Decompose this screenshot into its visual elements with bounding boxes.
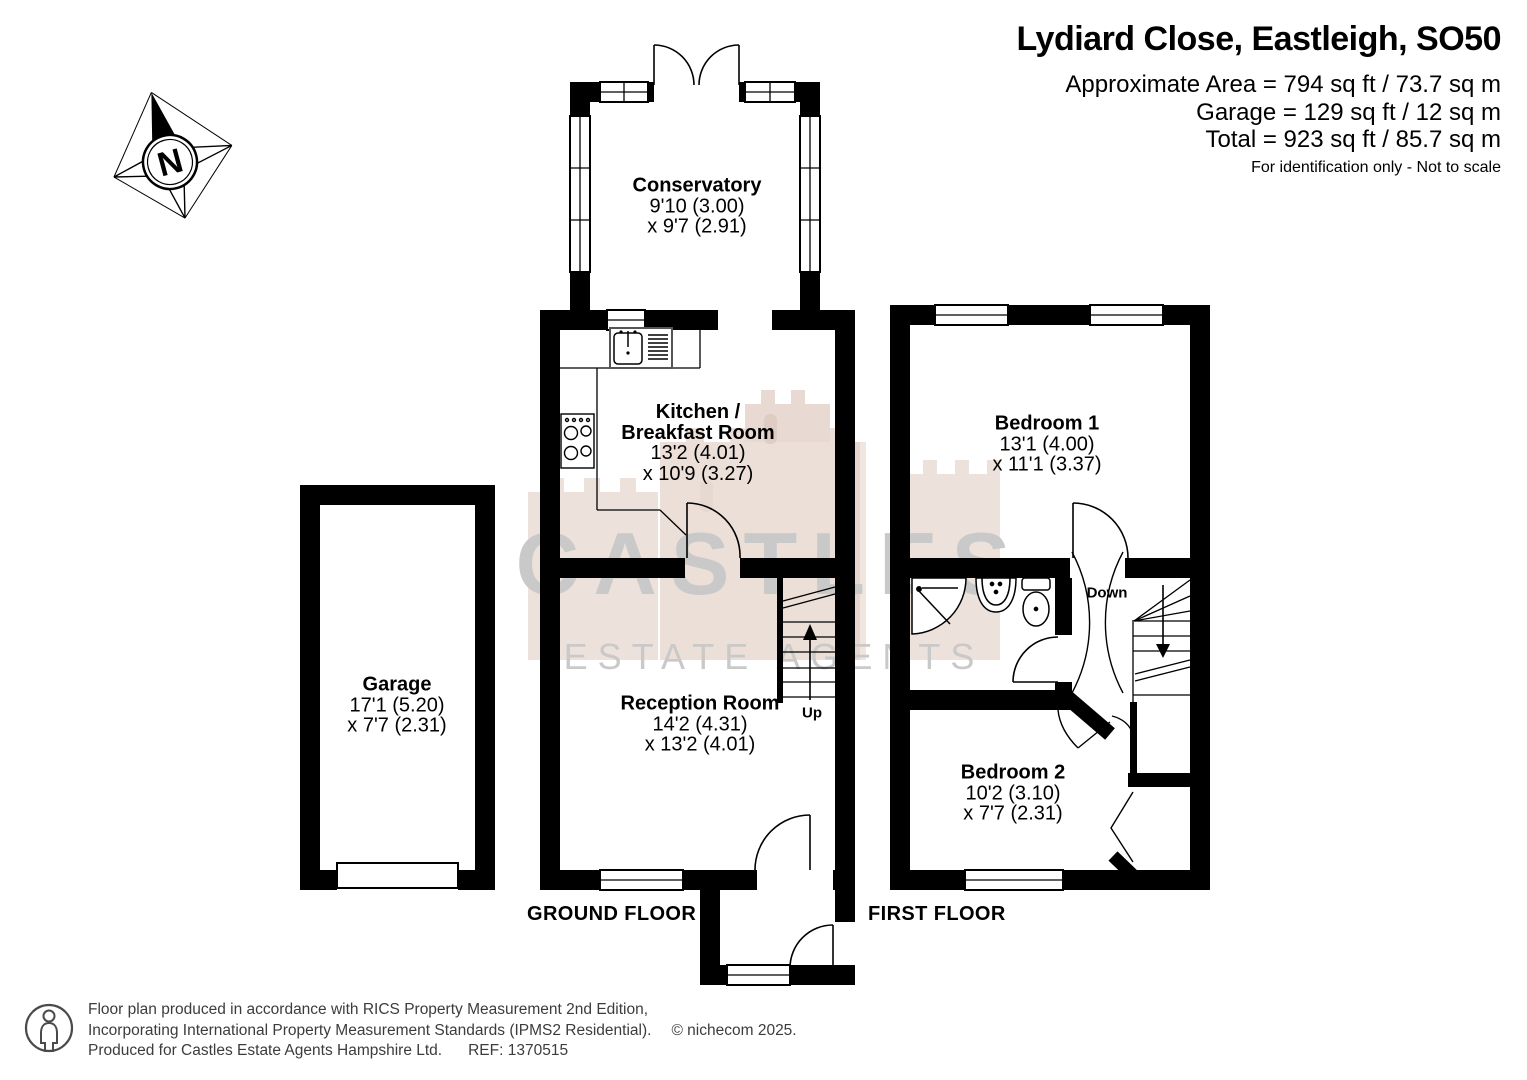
reception-door (755, 815, 810, 870)
footer-line1: Floor plan produced in accordance with R… (88, 1000, 797, 1021)
floorplan-page: CASTLES ESTATE AGENTS (0, 0, 1527, 1080)
stairs-up-label: Up (802, 705, 822, 722)
disclaimer: For identification only - Not to scale (1017, 159, 1501, 177)
room-label-garage: Garage 17'1 (5.20) x 7'7 (2.31) (347, 674, 446, 736)
cupboard-bifold-doors (1111, 792, 1133, 862)
reference-number: REF: 1370515 (468, 1041, 568, 1062)
footer: Floor plan produced in accordance with R… (24, 1000, 797, 1062)
garage-door (337, 863, 458, 888)
ground-floor-label: GROUND FLOOR (527, 903, 696, 926)
french-doors (654, 45, 739, 85)
stairs-down-label: Down (1087, 585, 1128, 602)
compass-icon: N (95, 76, 246, 233)
footer-line3: Produced for Castles Estate Agents Hamps… (88, 1041, 442, 1062)
garage-area: Garage = 129 sq ft / 12 sq m (1017, 99, 1501, 127)
hob-icon (561, 414, 594, 468)
bedroom1-door (1073, 503, 1128, 558)
watermark-line2: ESTATE AGENTS (564, 636, 985, 677)
first-floor-label: FIRST FLOOR (868, 903, 1006, 926)
title-block: Lydiard Close, Eastleigh, SO50 Approxima… (1017, 20, 1501, 177)
staircase-down (1133, 580, 1190, 702)
front-door (790, 925, 833, 968)
total-area: Total = 923 sq ft / 85.7 sq m (1017, 126, 1501, 154)
sink-icon (610, 328, 672, 368)
approximate-area: Approximate Area = 794 sq ft / 73.7 sq m (1017, 71, 1501, 99)
room-label-bedroom2: Bedroom 2 10'2 (3.10) x 7'7 (2.31) (961, 762, 1065, 824)
porch-walls (700, 890, 855, 985)
room-label-reception: Reception Room 14'2 (4.31) x 13'2 (4.01) (621, 693, 780, 755)
copyright: © nichecom 2025. (671, 1021, 796, 1042)
bathroom-door (1013, 637, 1058, 682)
landing-door-swings (1072, 552, 1123, 693)
page-title: Lydiard Close, Eastleigh, SO50 (1017, 20, 1501, 59)
room-label-kitchen: Kitchen / Breakfast Room 13'2 (4.01) x 1… (621, 402, 774, 484)
footer-line2: Incorporating International Property Mea… (88, 1021, 651, 1042)
toilet-icon (1022, 578, 1050, 626)
room-label-conservatory: Conservatory 9'10 (3.00) x 9'7 (2.91) (633, 175, 762, 237)
footer-text: Floor plan produced in accordance with R… (88, 1000, 797, 1062)
room-label-bedroom1: Bedroom 1 13'1 (4.00) x 11'1 (3.37) (992, 413, 1101, 475)
person-icon (24, 1000, 76, 1056)
